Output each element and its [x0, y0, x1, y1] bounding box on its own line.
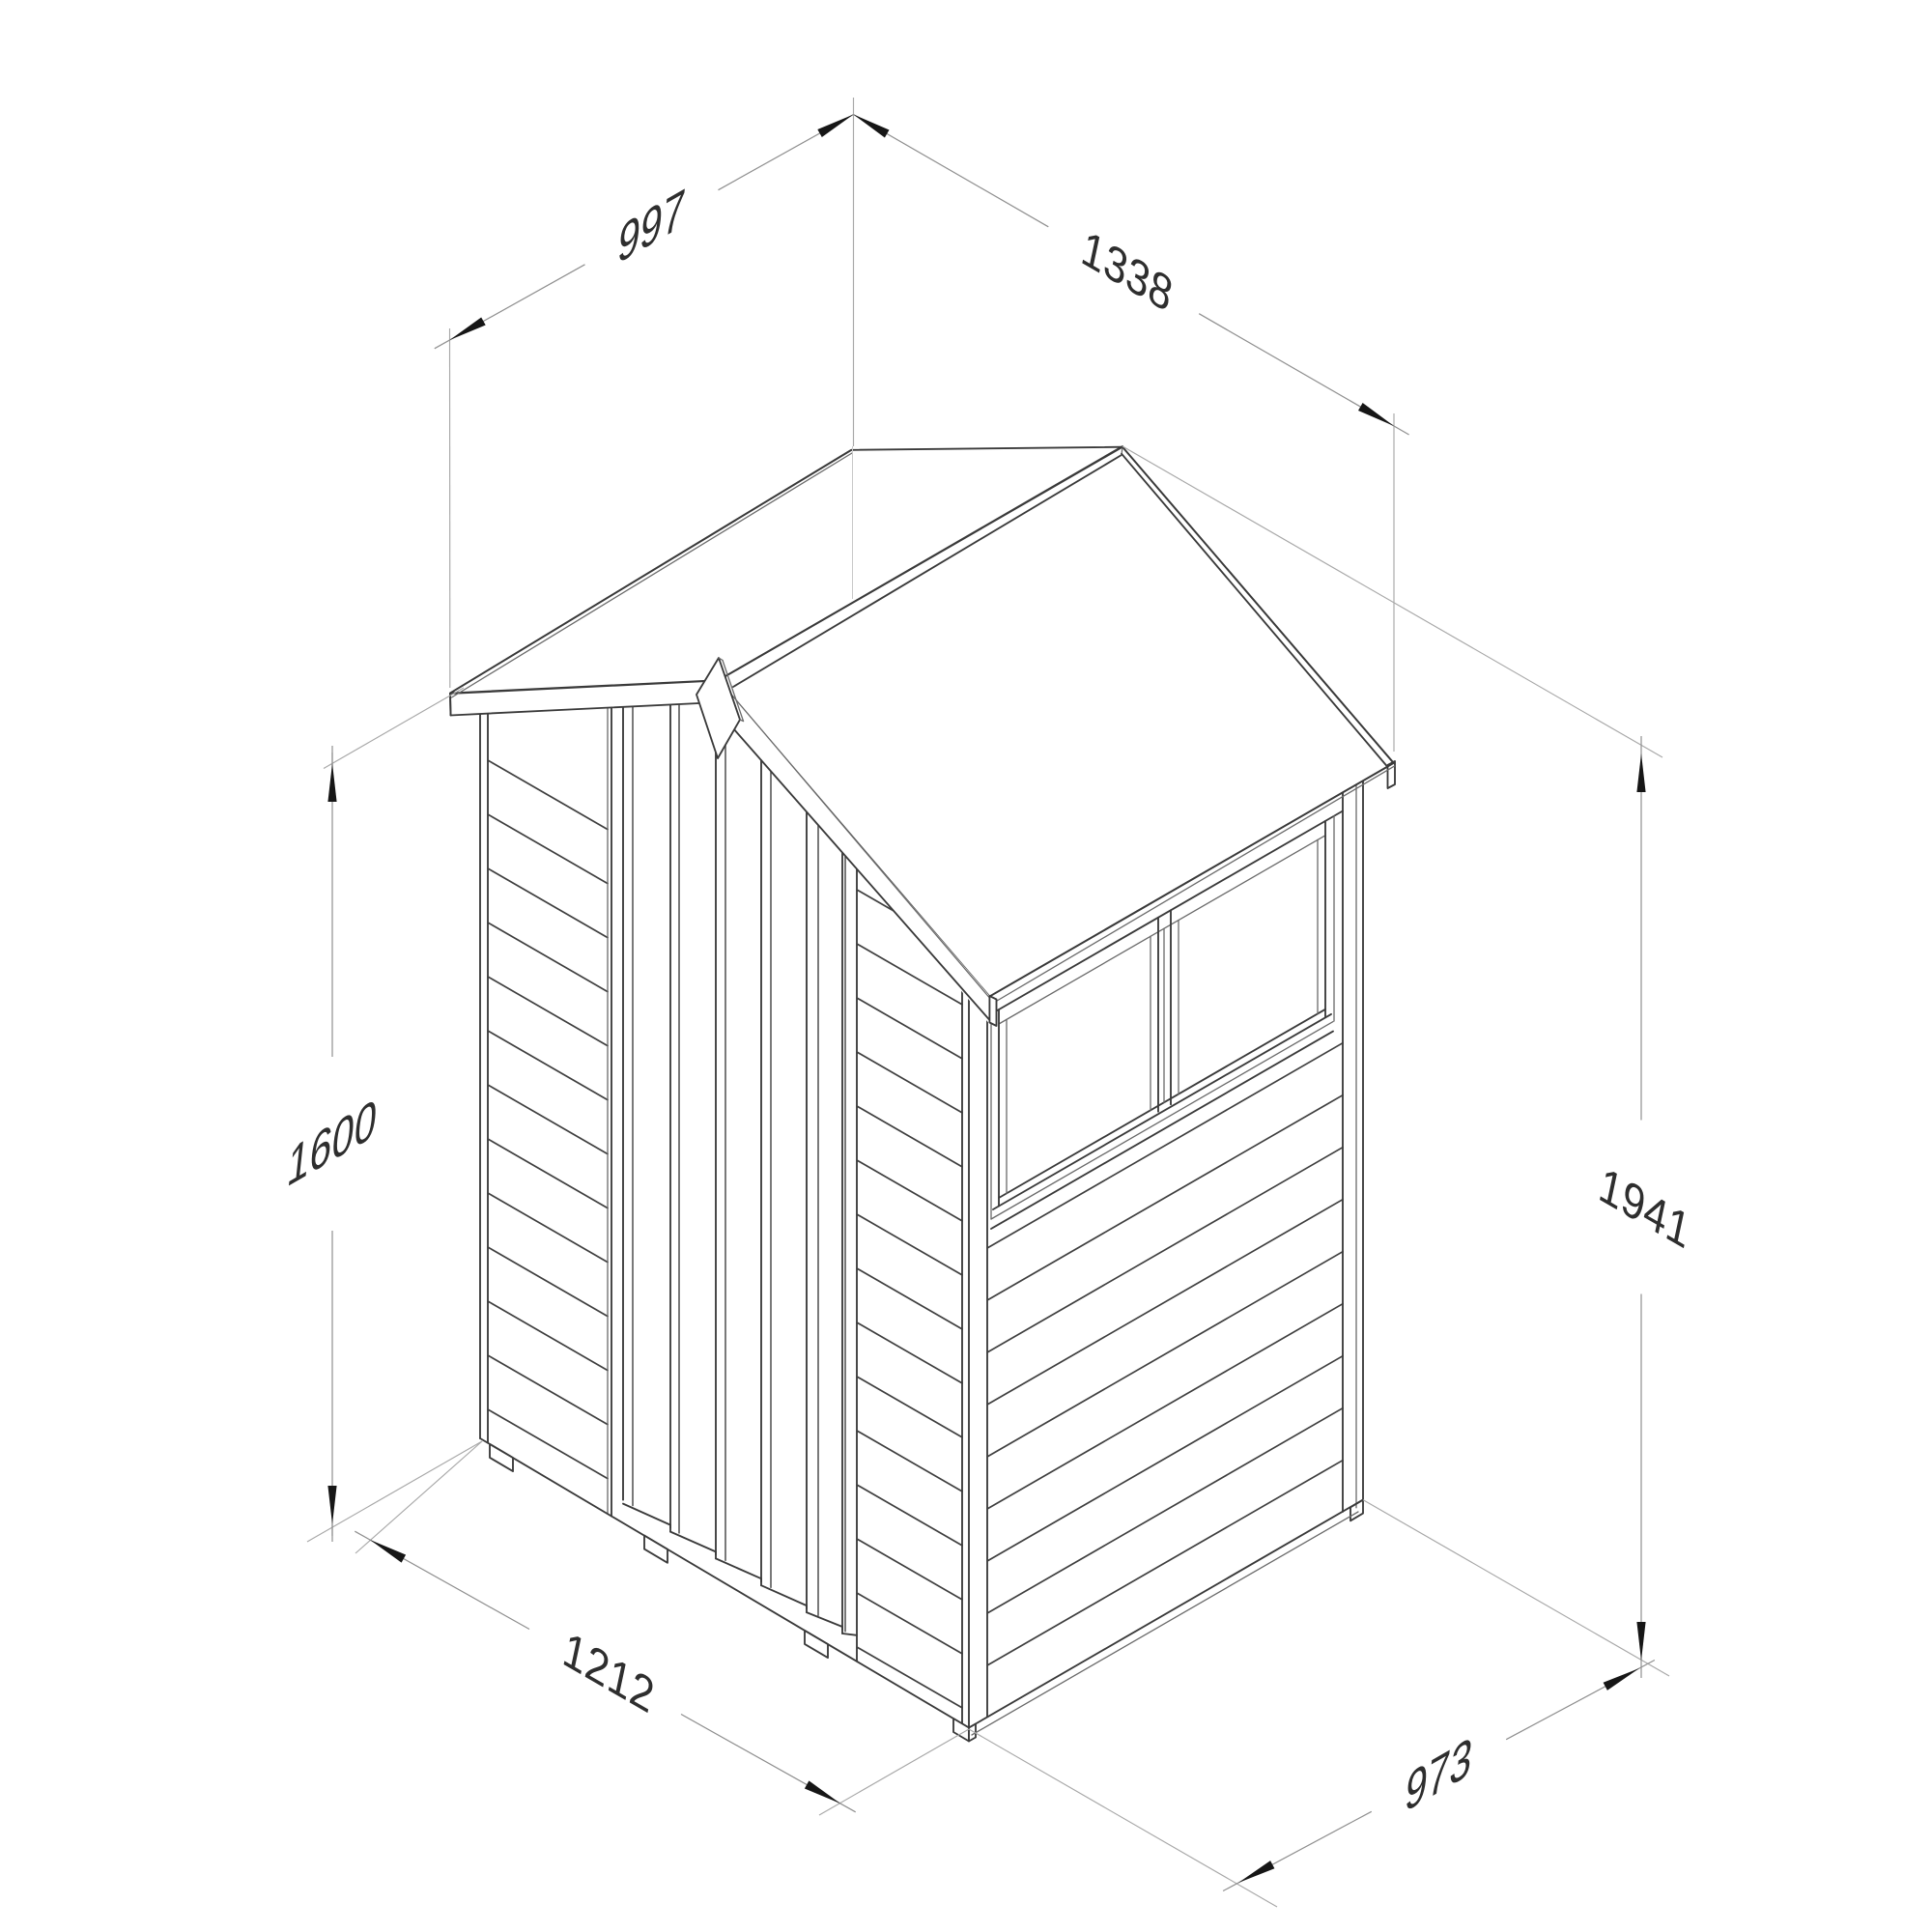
svg-text:997: 997 — [615, 176, 689, 276]
svg-text:1212: 1212 — [558, 1621, 659, 1724]
svg-text:1338: 1338 — [1077, 219, 1178, 323]
svg-text:973: 973 — [1403, 1724, 1476, 1825]
svg-text:1600: 1600 — [285, 1086, 381, 1200]
svg-text:1941: 1941 — [1595, 1156, 1695, 1260]
